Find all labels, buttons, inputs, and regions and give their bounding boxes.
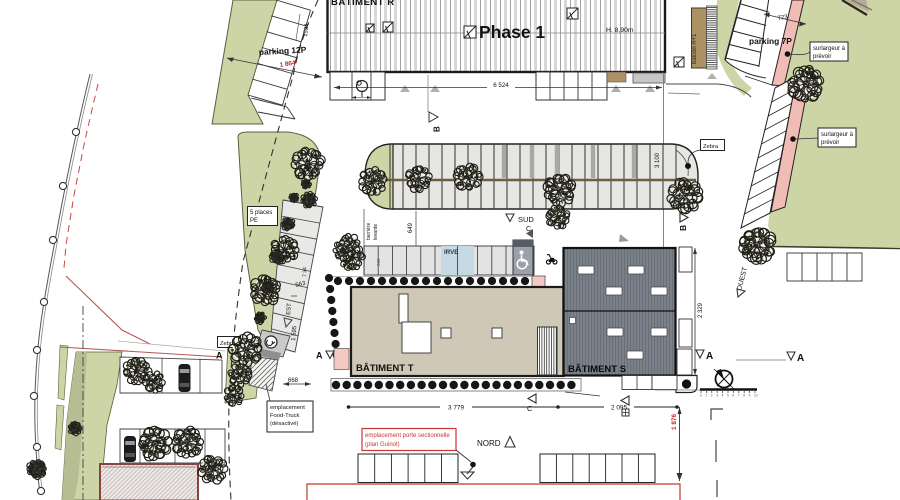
svg-text:1: 1 <box>705 394 707 398</box>
svg-text:barrière: barrière <box>366 223 372 240</box>
svg-text:surlargeur à: surlargeur à <box>813 46 846 52</box>
svg-text:NORD: NORD <box>477 439 501 448</box>
svg-text:649: 649 <box>408 222 414 233</box>
svg-text:3 779: 3 779 <box>448 405 464 412</box>
svg-text:6: 6 <box>732 394 734 398</box>
svg-text:(désactivé): (désactivé) <box>270 421 298 427</box>
svg-text:A: A <box>316 351 323 361</box>
svg-text:levante: levante <box>373 224 379 240</box>
svg-text:560: 560 <box>376 258 381 266</box>
svg-text:SUD: SUD <box>518 215 534 224</box>
svg-text:prévoir: prévoir <box>813 54 831 60</box>
svg-text:BÂTIMENT T: BÂTIMENT T <box>356 362 414 374</box>
svg-text:9: 9 <box>749 394 751 398</box>
svg-text:8: 8 <box>743 394 745 398</box>
svg-text:6 524: 6 524 <box>493 82 509 89</box>
svg-text:2: 2 <box>711 394 713 398</box>
svg-text:5 places: 5 places <box>250 210 272 216</box>
svg-text:Food-Truck: Food-Truck <box>270 413 300 419</box>
svg-text:3: 3 <box>716 394 718 398</box>
svg-text:A: A <box>216 351 223 361</box>
svg-text:balcon R+1: balcon R+1 <box>692 33 698 64</box>
svg-text:C: C <box>527 404 533 413</box>
svg-text:Zebra: Zebra <box>703 144 719 150</box>
svg-text:A: A <box>797 353 804 364</box>
svg-text:parking 7P: parking 7P <box>749 36 792 46</box>
svg-text:7: 7 <box>738 394 740 398</box>
svg-text:emplacement: emplacement <box>270 405 305 411</box>
svg-text:surlargeur à: surlargeur à <box>821 132 854 138</box>
svg-text:0: 0 <box>700 394 702 398</box>
svg-text:H. 8,90m: H. 8,90m <box>606 27 634 34</box>
svg-text:A: A <box>706 351 713 362</box>
svg-text:3 100: 3 100 <box>655 152 661 168</box>
svg-text:B: B <box>678 225 688 231</box>
svg-text:7 34: 7 34 <box>302 267 308 277</box>
svg-text:IRVE: IRVE <box>444 249 458 256</box>
svg-text:2 329: 2 329 <box>698 302 704 318</box>
svg-text:4: 4 <box>722 394 724 398</box>
svg-text:5: 5 <box>727 394 729 398</box>
svg-text:PE: PE <box>250 218 258 224</box>
svg-text:Phase 1: Phase 1 <box>479 22 545 42</box>
svg-text:B: B <box>433 126 442 132</box>
svg-text:(plan Guinot): (plan Guinot) <box>365 442 400 448</box>
svg-text:668: 668 <box>288 378 299 384</box>
svg-text:10: 10 <box>754 394 758 398</box>
svg-text:prévoir: prévoir <box>821 140 839 146</box>
svg-text:emplacement porte sectionnelle: emplacement porte sectionnelle <box>365 433 450 439</box>
svg-text:1 876: 1 876 <box>671 414 678 430</box>
svg-text:BÂTIMENT R: BÂTIMENT R <box>331 0 395 8</box>
svg-text:EST: EST <box>286 303 293 315</box>
svg-text:BÂTIMENT S: BÂTIMENT S <box>568 363 626 375</box>
